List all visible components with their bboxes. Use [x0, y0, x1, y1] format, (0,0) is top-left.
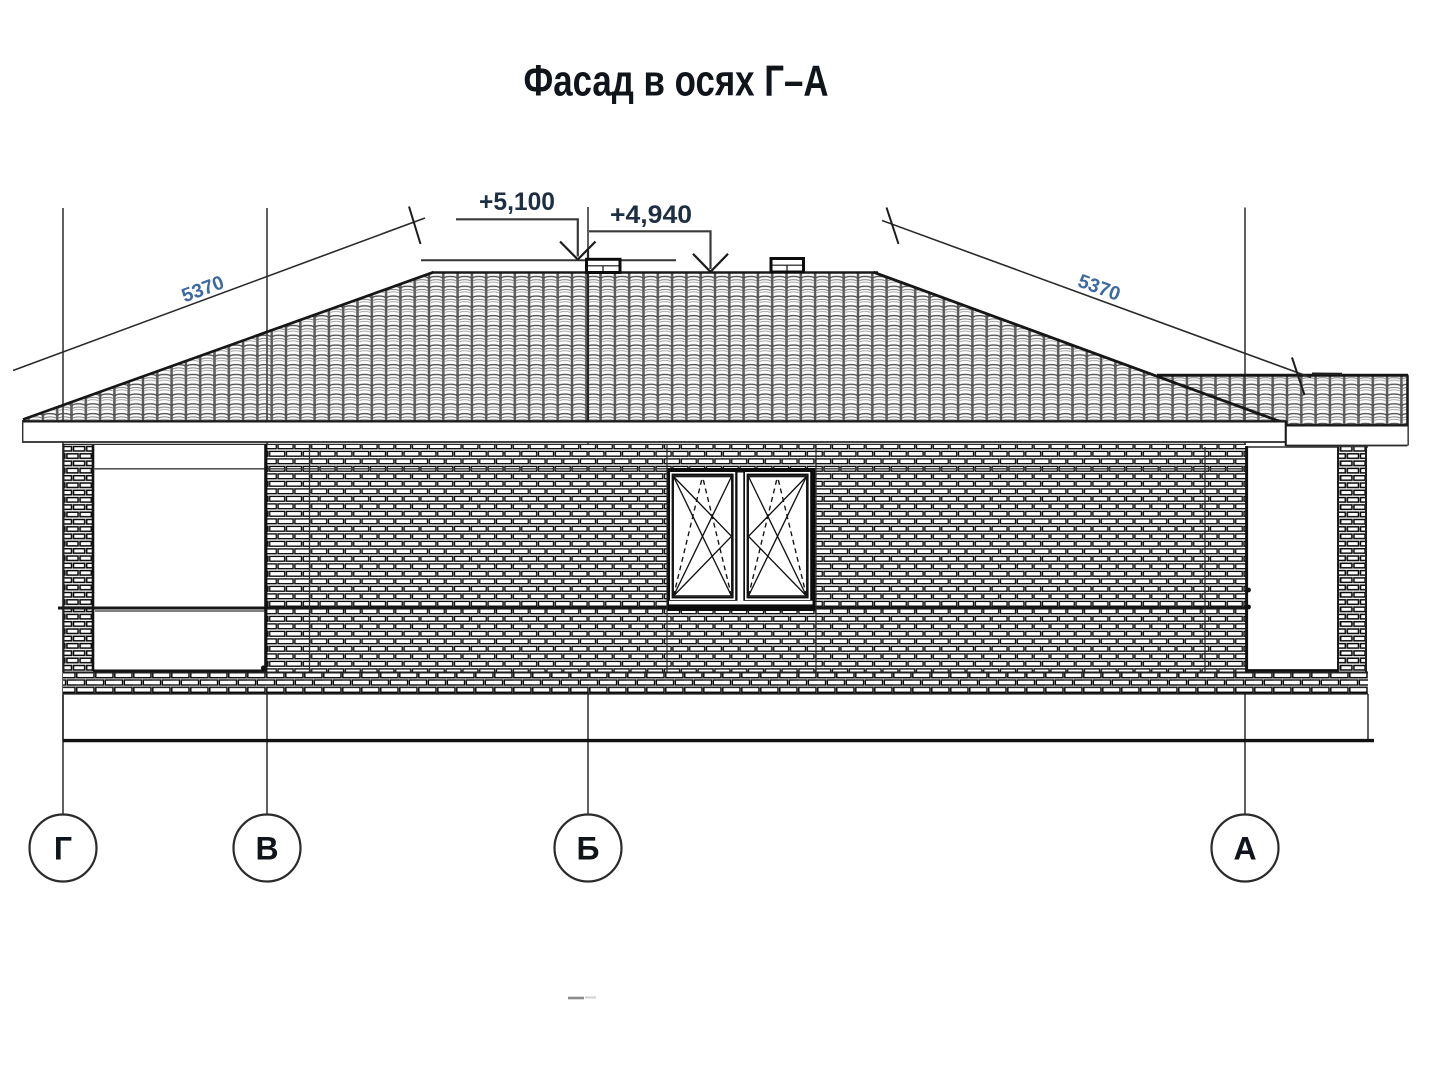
svg-text:В: В	[255, 831, 278, 867]
svg-text:Б: Б	[577, 831, 600, 867]
svg-text:5370: 5370	[179, 271, 227, 307]
svg-text:Г: Г	[54, 831, 72, 867]
svg-text:А: А	[1233, 831, 1256, 867]
svg-text:+5,100: +5,100	[479, 188, 555, 216]
svg-text:Фасад в осях Г–А: Фасад в осях Г–А	[524, 57, 829, 106]
svg-text:+4,940: +4,940	[610, 201, 692, 229]
